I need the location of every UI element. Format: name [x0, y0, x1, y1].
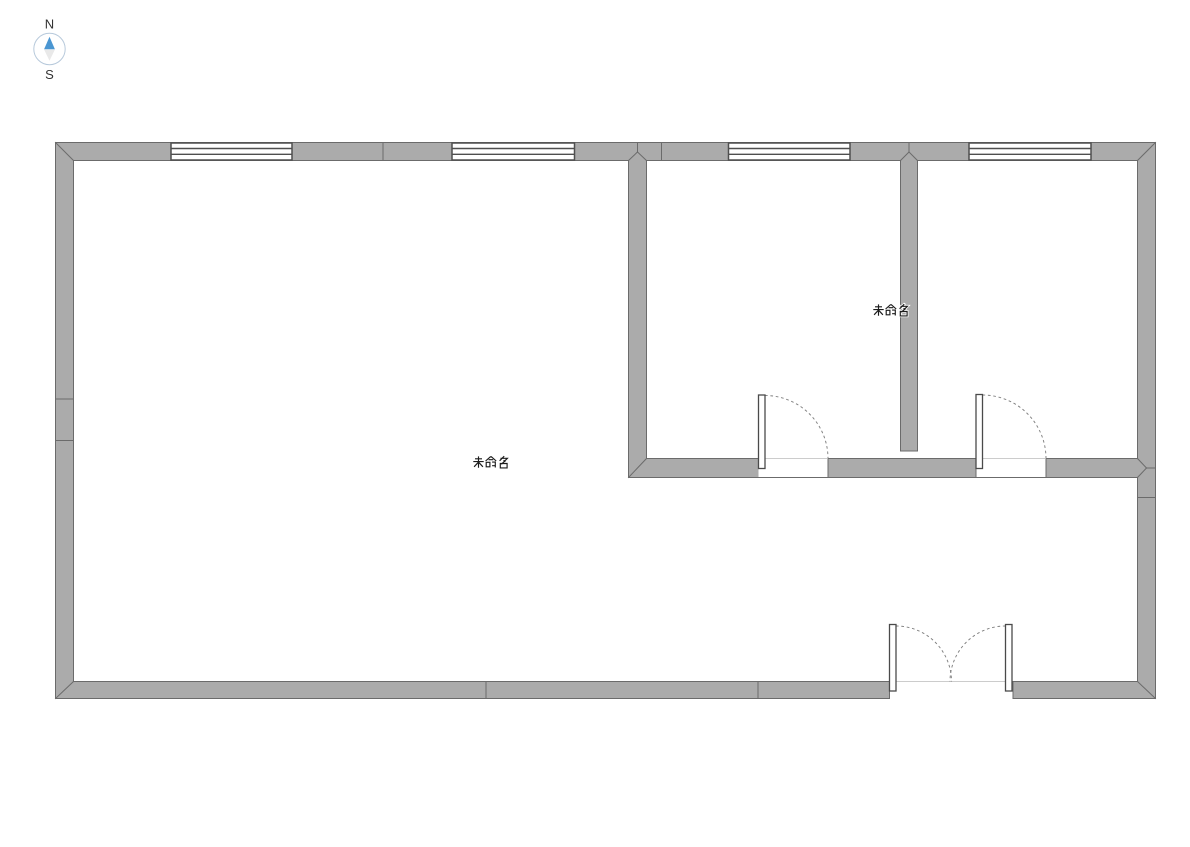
svg-text:S: S [45, 67, 54, 82]
svg-text:N: N [45, 17, 54, 32]
